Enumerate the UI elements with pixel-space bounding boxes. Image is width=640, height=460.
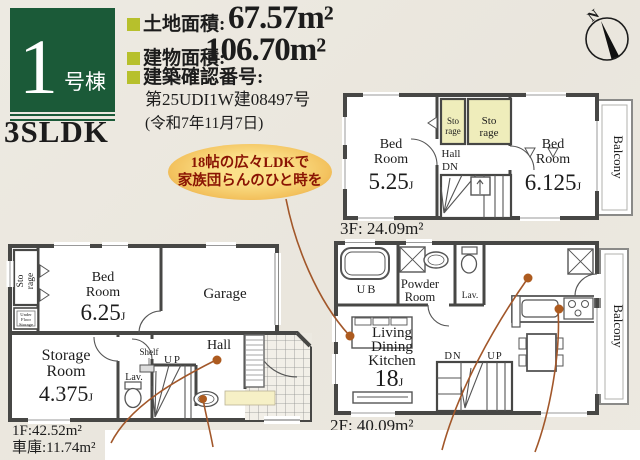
- underfloor-storage-label: Under Floor Storage: [19, 312, 33, 327]
- powder-room-label: Powder: [401, 277, 440, 291]
- shoe-cabinet: [245, 335, 264, 387]
- bullet-icon: [127, 18, 140, 31]
- svg-text:Sto: Sto: [16, 274, 26, 287]
- compass-north-label: N: [585, 7, 602, 25]
- bedroom-label: Bed: [92, 270, 115, 285]
- storage-room-label: Room: [46, 363, 86, 380]
- unit-number-suffix: 号棟: [64, 66, 106, 96]
- unit-number: 1: [19, 32, 58, 102]
- lavatory-label: Lav.: [462, 291, 479, 301]
- bedroom-label: Bed: [380, 137, 403, 152]
- stairs-up-label: UP: [487, 351, 502, 362]
- plan-type: 3SLDK: [4, 116, 109, 147]
- floor3-plan: Bed Room 5.25J Bed Room 6.125J Sto rage …: [338, 91, 638, 223]
- bedroom-label: Bed: [542, 137, 565, 152]
- stairs: [441, 175, 511, 218]
- hall-label: Hall: [207, 338, 231, 353]
- callout-bubble: 18帖の広々LDKで 家族団らんのひと時を: [168, 144, 332, 200]
- compass-needle: [601, 21, 619, 59]
- compass-icon: N: [575, 6, 639, 74]
- land-area-value: 67.57m²: [228, 2, 333, 35]
- storage-label: Sto: [447, 116, 460, 126]
- bathtub-icon: [341, 248, 389, 279]
- floor1-area-label: 1F:42.52m²: [12, 424, 82, 439]
- bedroom-label: Room: [86, 285, 120, 300]
- bedroom-label: Room: [536, 152, 570, 167]
- bullet-icon: [127, 52, 140, 65]
- callout-line1: 18帖の広々LDKで: [191, 154, 309, 172]
- bedroom-size: 6.125J: [525, 170, 582, 195]
- tv-board-icon: [353, 392, 412, 403]
- garage-area-label: 車庫:11.74m²: [12, 441, 96, 456]
- floor3-area-label: 3F: 24.09m²: [340, 220, 424, 237]
- shelf: [140, 365, 154, 372]
- unit-bath-label: UB: [357, 282, 378, 296]
- stairs: [437, 362, 512, 411]
- floor2-plan: UB Powder Room Lav. Living Dining Kitche…: [331, 238, 637, 424]
- bullet-icon: [127, 71, 140, 84]
- floor1-plan: Sto rage Under Floor Storage Bed Room 6.…: [6, 241, 316, 427]
- fridge-icon: [568, 249, 593, 274]
- building-area-value: 106.70m²: [205, 34, 325, 67]
- entry-step: [225, 391, 275, 405]
- bedroom-size: 6.25J: [81, 300, 126, 325]
- sink-icon: [424, 252, 448, 268]
- storage-side-label: Sto rage: [16, 273, 36, 289]
- confirmation-number: 第25UDI1W建08497号: [145, 91, 310, 108]
- lavatory-label: Lav.: [125, 372, 142, 383]
- shelf-label: Shelf: [140, 347, 159, 357]
- powder-room-label: Room: [405, 290, 436, 304]
- balcony-label: Balcony: [611, 135, 626, 179]
- garage-label: Garage: [203, 286, 247, 302]
- storage-room-label: Storage: [42, 347, 91, 364]
- basin-icon: [194, 392, 218, 407]
- toilet-icon: [125, 382, 141, 408]
- kitchen-counter: [512, 296, 595, 327]
- storage-room-size: 4.375J: [39, 381, 94, 406]
- flyer-canvas: 1 号棟 3SLDK 土地面積: 67.57m² 建物面積: 106.70m² …: [0, 0, 640, 460]
- stairs-up-label: UP: [164, 354, 182, 366]
- stairs-down-label: DN: [444, 351, 461, 362]
- storage-label: rage: [480, 127, 499, 139]
- hall-label: Hall: [442, 148, 461, 160]
- toilet-icon: [462, 247, 478, 273]
- blank-mask: [105, 430, 640, 460]
- bedroom-size: 5.25J: [369, 169, 414, 194]
- confirmation-date: (令和7年11月7日): [145, 116, 263, 132]
- confirmation-label: 建築確認番号:: [143, 68, 263, 87]
- storage-label: Sto: [482, 115, 497, 127]
- bedroom-label: Room: [374, 152, 408, 167]
- callout-line2: 家族団らんのひと時を: [178, 172, 323, 190]
- stairs-down-label: DN: [442, 161, 458, 173]
- unit-number-badge: 1 号棟: [10, 8, 115, 112]
- svg-text:rage: rage: [26, 273, 36, 289]
- balcony-label: Balcony: [611, 304, 626, 348]
- storage-label: rage: [445, 126, 461, 136]
- washer-icon: [400, 247, 425, 272]
- svg-text:Storage: Storage: [19, 322, 33, 327]
